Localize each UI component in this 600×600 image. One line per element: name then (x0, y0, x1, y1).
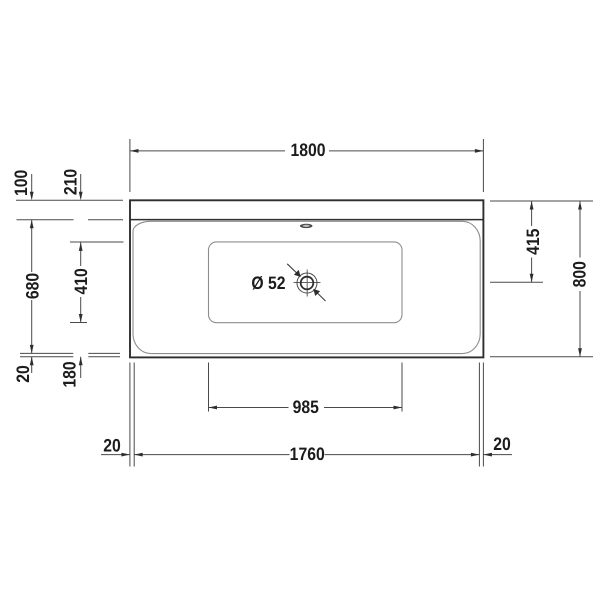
svg-text:410: 410 (71, 268, 91, 294)
svg-text:20: 20 (103, 436, 121, 456)
svg-text:Ø 52: Ø 52 (251, 273, 285, 293)
svg-text:800: 800 (570, 261, 590, 287)
svg-text:680: 680 (22, 273, 42, 299)
svg-text:1800: 1800 (290, 140, 325, 160)
svg-text:100: 100 (11, 170, 31, 196)
svg-text:985: 985 (293, 397, 319, 417)
svg-text:20: 20 (13, 365, 33, 383)
svg-text:415: 415 (523, 229, 543, 255)
svg-text:210: 210 (60, 169, 80, 195)
svg-text:180: 180 (60, 361, 80, 387)
svg-text:1760: 1760 (290, 444, 325, 464)
svg-text:20: 20 (493, 434, 511, 454)
